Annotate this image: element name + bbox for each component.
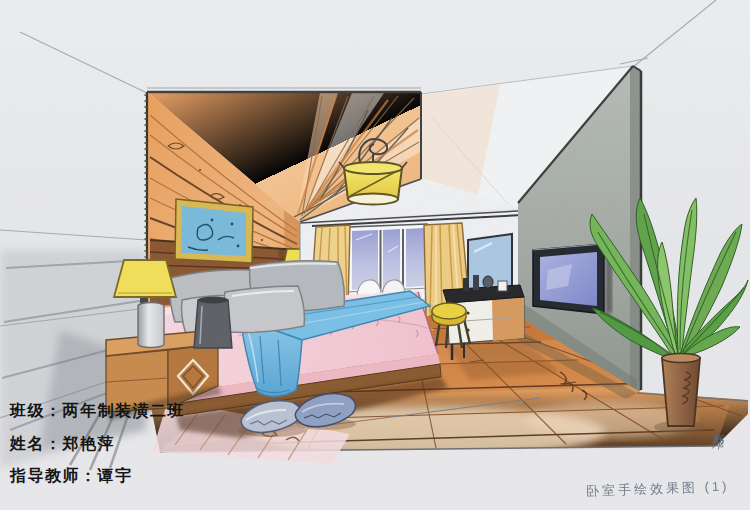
student-name-line: 姓名：郑艳萍 [10, 434, 115, 455]
scanned-drawing-page: 班级：两年制装潢二班 姓名：郑艳萍 指导教师：谭宇 卧室手绘效果图 (1) 郑艳… [0, 0, 750, 510]
class-info-line: 班级：两年制装潢二班 [10, 401, 185, 422]
teacher-line: 指导教师：谭宇 [10, 466, 133, 487]
